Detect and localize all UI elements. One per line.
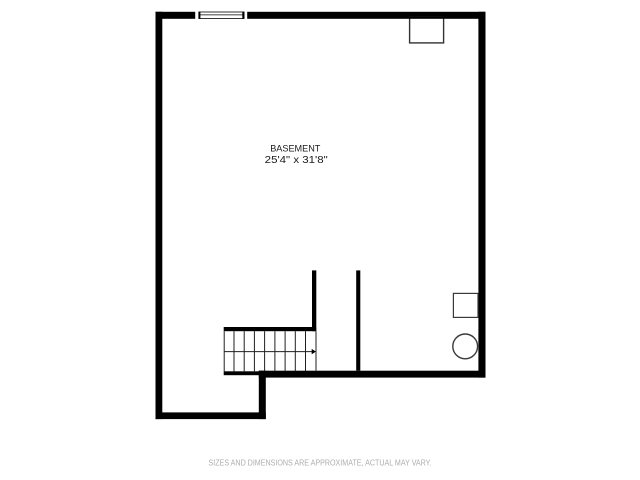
svg-text:SIZES AND DIMENSIONS ARE APPRO: SIZES AND DIMENSIONS ARE APPROXIMATE, AC… [209, 458, 432, 467]
svg-text:25'4" x 31'8": 25'4" x 31'8" [265, 155, 329, 166]
svg-text:BASEMENT: BASEMENT [270, 144, 321, 154]
